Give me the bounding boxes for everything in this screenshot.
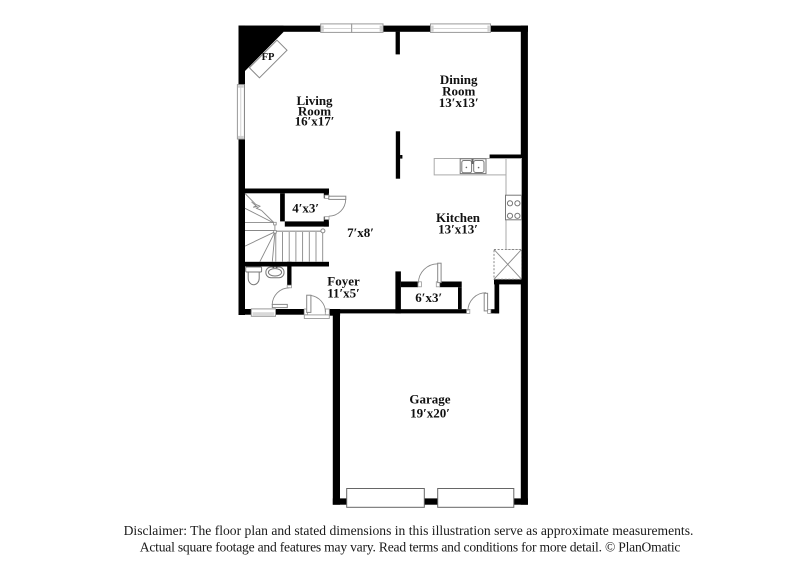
svg-text:16′x17′: 16′x17′ [295,114,335,129]
svg-text:Disclaimer: The floor plan and: Disclaimer: The floor plan and stated di… [124,523,694,538]
svg-text:4′x3′: 4′x3′ [292,200,319,215]
svg-text:6′x3′: 6′x3′ [415,290,442,305]
svg-text:Actual square footage and feat: Actual square footage and features may v… [140,540,681,555]
svg-text:11′x5′: 11′x5′ [327,285,360,300]
svg-text:Garage: Garage [409,391,450,406]
svg-text:19′x20′: 19′x20′ [410,405,450,420]
svg-text:13′x13′: 13′x13′ [438,222,478,237]
svg-text:FP: FP [262,52,275,63]
svg-text:7′x8′: 7′x8′ [347,225,374,240]
svg-text:13′x13′: 13′x13′ [439,95,479,110]
